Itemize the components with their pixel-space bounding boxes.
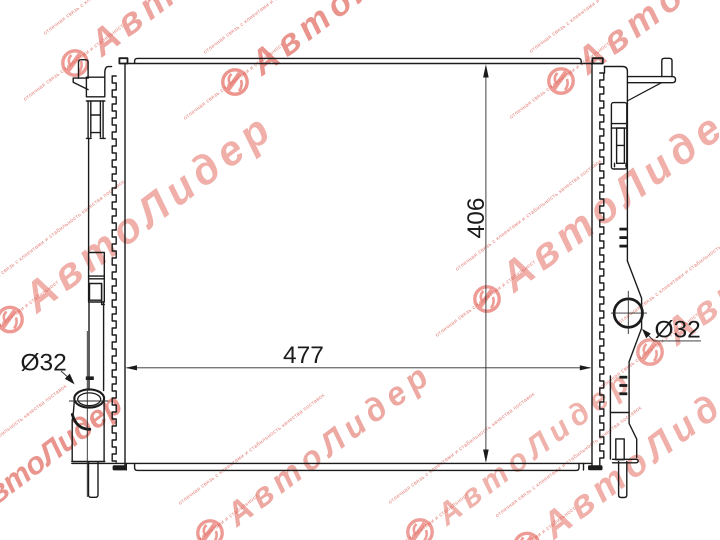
svg-text:Ø32: Ø32 — [21, 350, 67, 377]
svg-text:Ø32: Ø32 — [655, 317, 701, 344]
svg-text:406: 406 — [463, 198, 490, 239]
svg-text:477: 477 — [283, 342, 324, 369]
